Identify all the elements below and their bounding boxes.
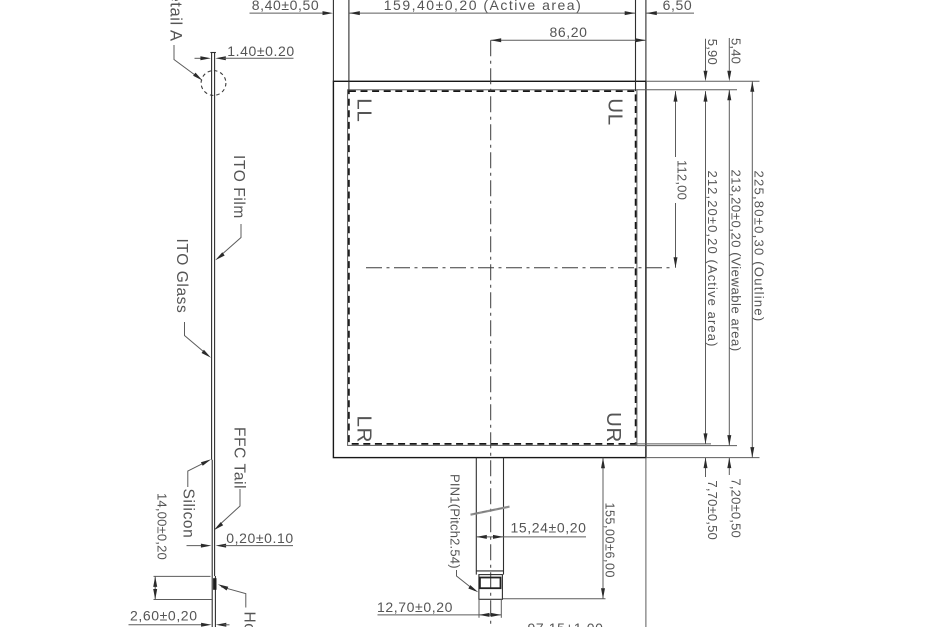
svg-text:97,15±1,00: 97,15±1,00 — [528, 620, 604, 627]
svg-text:14,00±0,20: 14,00±0,20 — [155, 493, 170, 560]
svg-text:159,40±0,20 (Active area): 159,40±0,20 (Active area) — [384, 0, 583, 13]
svg-text:Silicon: Silicon — [180, 489, 197, 539]
svg-text:7,70±0,50: 7,70±0,50 — [705, 480, 720, 540]
svg-text:213,20±0,20 (Viewable area): 213,20±0,20 (Viewable area) — [729, 170, 744, 352]
svg-text:5,40: 5,40 — [729, 38, 744, 64]
svg-text:7,20±0,50: 7,20±0,50 — [729, 478, 744, 538]
svg-text:112,00: 112,00 — [675, 160, 690, 200]
svg-text:12,70±0,20: 12,70±0,20 — [377, 599, 453, 615]
svg-text:8,40±0,50: 8,40±0,50 — [252, 0, 320, 13]
svg-text:1.40±0.20: 1.40±0.20 — [227, 43, 295, 59]
svg-text:FFC Tail: FFC Tail — [230, 427, 247, 489]
svg-text:212,20±0,20 (Active area): 212,20±0,20 (Active area) — [705, 171, 720, 348]
svg-text:Hot Bar: Hot Bar — [241, 612, 258, 627]
svg-text:LL: LL — [352, 98, 375, 122]
svg-text:86,20: 86,20 — [549, 24, 587, 40]
svg-text:0,20±0.10: 0,20±0.10 — [226, 530, 294, 546]
svg-text:ITO Film: ITO Film — [230, 155, 247, 219]
svg-text:UR: UR — [602, 412, 625, 443]
svg-text:225,80±0,30 (Outline): 225,80±0,30 (Outline) — [752, 171, 767, 323]
svg-text:PIN1(Pitch2.54): PIN1(Pitch2.54) — [447, 474, 462, 569]
svg-text:2,60±0,20: 2,60±0,20 — [130, 608, 198, 624]
svg-text:LR: LR — [352, 416, 375, 444]
svg-text:UL: UL — [604, 98, 627, 126]
svg-text:6,50: 6,50 — [663, 0, 693, 13]
svg-text:Detail A: Detail A — [166, 0, 184, 42]
svg-text:155,00±6,00: 155,00±6,00 — [602, 503, 616, 578]
svg-text:ITO Glass: ITO Glass — [173, 239, 190, 314]
svg-text:5,90: 5,90 — [705, 39, 720, 65]
svg-text:15,24±0,20: 15,24±0,20 — [511, 520, 587, 536]
